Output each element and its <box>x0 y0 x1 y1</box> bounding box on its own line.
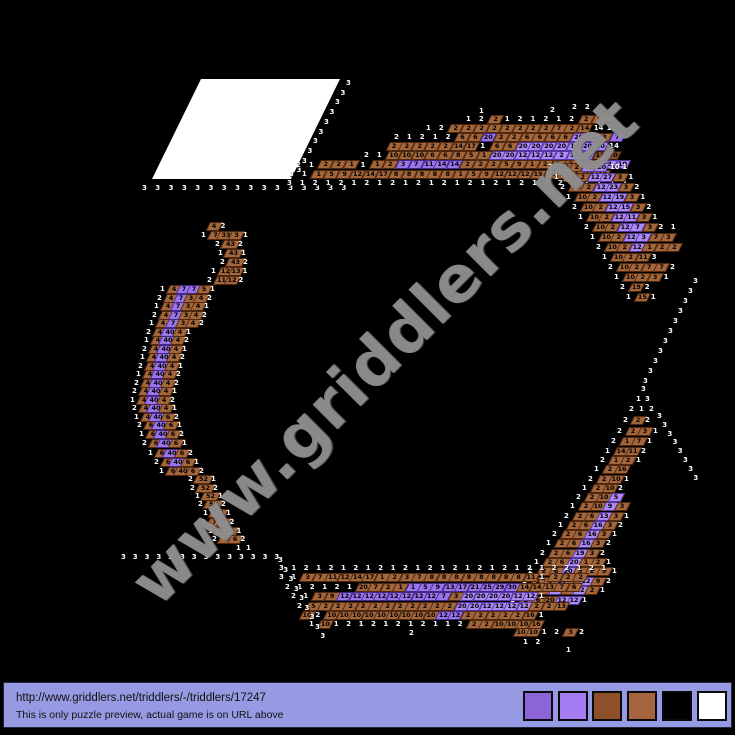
grid-number: 1 <box>626 293 631 301</box>
grid-number: 2 <box>179 430 184 438</box>
grid-number: 1 <box>210 285 215 293</box>
grid-number: 3 <box>278 556 283 564</box>
grid-number: 3 <box>693 474 698 482</box>
clue-cell: 5 <box>610 493 623 502</box>
grid-number: 1 <box>429 179 434 187</box>
clue-cell: 3 <box>626 193 639 202</box>
grid-number: 2 <box>477 564 482 572</box>
grid-number: 2 <box>207 276 212 284</box>
grid-number: 3 <box>645 395 650 403</box>
clue-cell: 5 <box>198 285 211 294</box>
grid-number: 1 <box>578 213 583 221</box>
grid-number: 2 <box>584 223 589 231</box>
grid-number: 1 <box>194 458 199 466</box>
grid-number: 3 <box>643 377 648 385</box>
grid-number: 1 <box>647 437 652 445</box>
grid-number: 2 <box>645 283 650 291</box>
grid-number: 1 <box>177 421 182 429</box>
grid-number: 2 <box>329 564 334 572</box>
grid-number: 2 <box>207 294 212 302</box>
grid-number: 2 <box>646 203 651 211</box>
grid-number: 2 <box>285 583 290 591</box>
grid-number: 1 <box>316 564 321 572</box>
grid-number: 1 <box>480 142 485 150</box>
grid-number: 1 <box>359 620 364 628</box>
grid-number: 3 <box>142 184 147 192</box>
puzzle-url[interactable]: http://www.griddlers.net/triddlers/-/tri… <box>16 692 266 704</box>
grid-number: 1 <box>624 512 629 520</box>
grid-number: 1 <box>664 273 669 281</box>
grid-number: 3 <box>657 412 662 420</box>
grid-number: 2 <box>132 404 137 412</box>
grid-number: 1 <box>341 564 346 572</box>
palette-swatch[interactable] <box>558 691 588 721</box>
grid-number: 2 <box>154 458 159 466</box>
grid-number: 1 <box>309 161 314 169</box>
grid-number: 3 <box>319 128 324 136</box>
grid-number: 1 <box>361 161 366 169</box>
clue-cell: 3 <box>649 273 662 282</box>
grid-number: 1 <box>558 521 563 529</box>
grid-number: 2 <box>199 319 204 327</box>
grid-number: 1 <box>154 302 159 310</box>
grid-number: 2 <box>458 620 463 628</box>
grid-number: 3 <box>341 89 346 97</box>
grid-number: 3 <box>648 367 653 375</box>
preview-note: This is only puzzle preview, actual game… <box>16 709 284 721</box>
grid-number: 1 <box>481 179 486 187</box>
grid-number: 2 <box>346 620 351 628</box>
grid-number: 2 <box>596 243 601 251</box>
grid-number: 1 <box>445 620 450 628</box>
grid-number: 1 <box>539 573 544 581</box>
grid-number: 3 <box>667 430 672 438</box>
grid-number: 2 <box>239 276 244 284</box>
clue-cell: 13 <box>230 267 243 276</box>
grid-number: 1 <box>601 564 606 572</box>
grid-number: 1 <box>366 564 371 572</box>
grid-number: 3 <box>683 456 688 464</box>
grid-number: 1 <box>300 179 305 187</box>
grid-number: 2 <box>634 183 639 191</box>
clue-cell: 2 <box>586 586 599 595</box>
clue-cell: 12 <box>524 592 537 601</box>
grid-number: 1 <box>455 179 460 187</box>
clue-cell: 10 <box>604 484 617 493</box>
grid-number: 2 <box>180 353 185 361</box>
grid-number: 2 <box>518 115 523 123</box>
clue-cell: 16 <box>616 465 629 474</box>
grid-number: 1 <box>546 539 551 547</box>
grid-number: 1 <box>640 193 645 201</box>
grid-number: 3 <box>688 465 693 473</box>
grid-number: 3 <box>320 632 325 640</box>
grid-number: 1 <box>408 620 413 628</box>
grid-number: 2 <box>600 549 605 557</box>
grid-number: 2 <box>174 379 179 387</box>
clue-cell: 3 <box>610 512 623 521</box>
grid-number: 1 <box>160 285 165 293</box>
grid-number: 2 <box>502 564 507 572</box>
grid-number: 1 <box>515 564 520 572</box>
grid-number: 2 <box>142 439 147 447</box>
grid-number: 1 <box>606 558 611 566</box>
grid-number: 2 <box>564 512 569 520</box>
grid-number: 1 <box>140 353 145 361</box>
clue-cell: 4 <box>168 353 181 362</box>
grid-number: 2 <box>142 345 147 353</box>
clue-cell: 11 <box>525 573 538 582</box>
clue-cell: 19 <box>630 283 643 292</box>
grid-number: 1 <box>671 223 676 231</box>
grid-number: 3 <box>324 118 329 126</box>
grid-number: 1 <box>134 413 139 421</box>
grid-number: 1 <box>531 115 536 123</box>
grid-number: 3 <box>310 613 315 621</box>
grid-number: 1 <box>534 558 539 566</box>
clue-cell: 2 <box>632 416 645 425</box>
grid-number: 2 <box>442 179 447 187</box>
grid-number: 1 <box>291 564 296 572</box>
grid-number: 3 <box>641 385 646 393</box>
grid-number: 2 <box>215 240 220 248</box>
clue-cell: 6 <box>165 421 178 430</box>
grid-number: 1 <box>322 583 327 591</box>
grid-number: 2 <box>138 362 143 370</box>
grid-number: 1 <box>612 530 617 538</box>
grid-number: 2 <box>137 421 142 429</box>
clue-cell: 2 <box>489 115 502 124</box>
clue-cell: 3 <box>644 223 657 232</box>
grid-number: 3 <box>673 317 678 325</box>
grid-number: 2 <box>315 611 320 619</box>
grid-number: 1 <box>182 345 187 353</box>
grid-number: 1 <box>440 564 445 572</box>
grid-number: 2 <box>297 602 302 610</box>
grid-number: 2 <box>396 620 401 628</box>
grid-number: 2 <box>670 263 675 271</box>
grid-number: 1 <box>465 564 470 572</box>
grid-number: 1 <box>377 151 382 159</box>
clue-cell: 3 <box>564 628 577 637</box>
grid-number: 2 <box>658 223 663 231</box>
grid-number: 2 <box>618 521 623 529</box>
clue-cell: 2 <box>622 456 635 465</box>
grid-number: 1 <box>426 124 431 132</box>
grid-number: 3 <box>335 98 340 106</box>
grid-number: 1 <box>243 267 248 275</box>
grid-number: 1 <box>211 267 216 275</box>
clue-cell: 3 <box>638 213 651 222</box>
clue-cell: 2 <box>574 573 587 582</box>
grid-number: 3 <box>673 438 678 446</box>
clue-cell: 1 <box>345 160 358 169</box>
grid-number: 1 <box>590 233 595 241</box>
clue-cell: 6 <box>182 458 195 467</box>
grid-number: 1 <box>479 107 484 115</box>
palette-swatch[interactable] <box>592 691 622 721</box>
grid-number: 1 <box>159 467 164 475</box>
grid-number: 1 <box>347 583 352 591</box>
grid-number: 1 <box>556 115 561 123</box>
grid-number: 3 <box>279 573 284 581</box>
grid-number: 1 <box>639 405 644 413</box>
grid-number: 2 <box>588 475 593 483</box>
grid-number: 3 <box>294 585 299 593</box>
palette-swatch[interactable] <box>627 691 657 721</box>
grid-number: 1 <box>309 620 314 628</box>
grid-number: 1 <box>243 231 248 239</box>
clue-cell: 43 <box>222 240 239 249</box>
grid-number: 2 <box>649 405 654 413</box>
grid-number: 2 <box>403 564 408 572</box>
clue-cell: 6 <box>167 430 180 439</box>
grid-number: 2 <box>552 530 557 538</box>
grid-number: 1 <box>383 620 388 628</box>
grid-number: 3 <box>251 553 256 561</box>
clue-cell: 3 <box>586 549 599 558</box>
clue-cell: 3 <box>598 530 611 539</box>
grid-number: 2 <box>296 161 301 169</box>
grid-number: 2 <box>550 106 555 114</box>
grid-number: 1 <box>651 293 656 301</box>
clue-cell: 11 <box>627 447 640 456</box>
grid-number: 2 <box>371 620 376 628</box>
grid-number: 1 <box>201 231 206 239</box>
grid-number: 2 <box>310 583 315 591</box>
grid-number: 2 <box>641 447 646 455</box>
grid-number: 1 <box>582 596 587 604</box>
grid-number: 3 <box>287 179 292 187</box>
grid-number: 1 <box>334 620 339 628</box>
clue-cell: 4 <box>172 336 185 345</box>
grid-number: 2 <box>554 628 559 636</box>
grid-number: 1 <box>144 336 149 344</box>
grid-number: 2 <box>353 564 358 572</box>
grid-number: 2 <box>468 179 473 187</box>
grid-number: 3 <box>683 297 688 305</box>
clue-cell: 3 <box>616 502 629 511</box>
grid-number: 3 <box>330 108 335 116</box>
clue-cell: 2 <box>668 243 681 252</box>
grid-number: 2 <box>313 179 318 187</box>
grid-number: 2 <box>132 387 137 395</box>
clue-cell: 4 <box>164 370 177 379</box>
grid-number: 3 <box>653 357 658 365</box>
clue-cell: 7 <box>655 263 668 272</box>
grid-number: 1 <box>614 273 619 281</box>
grid-number: 1 <box>505 115 510 123</box>
clue-cell: 10 <box>610 475 623 484</box>
grid-number: 2 <box>364 179 369 187</box>
grid-number: 1 <box>391 564 396 572</box>
grid-number: 3 <box>248 184 253 192</box>
grid-number: 1 <box>628 173 633 181</box>
grid-number: 1 <box>582 484 587 492</box>
grid-number: 2 <box>421 620 426 628</box>
clue-cell: 3 <box>639 427 652 436</box>
grid-number: 1 <box>577 564 582 572</box>
grid-number: 3 <box>678 447 683 455</box>
grid-number: 2 <box>364 151 369 159</box>
clue-cell: 3 <box>620 183 633 192</box>
clue-cell: 4 <box>187 319 200 328</box>
grid-number: 1 <box>652 213 657 221</box>
grid-number: 1 <box>302 170 307 178</box>
grid-number: 3 <box>289 170 294 178</box>
grid-number: 3 <box>275 184 280 192</box>
clue-cell: 12 <box>226 276 239 285</box>
grid-number: 1 <box>594 465 599 473</box>
grid-number: 1 <box>653 427 658 435</box>
grid-number: 3 <box>688 287 693 295</box>
grid-number: 1 <box>178 362 183 370</box>
grid-number: 1 <box>326 179 331 187</box>
palette-swatch[interactable] <box>523 691 553 721</box>
clue-cell: 43 <box>225 249 242 258</box>
footer-bar: http://www.griddlers.net/triddlers/-/tri… <box>3 682 732 728</box>
grid-number: 2 <box>188 475 193 483</box>
grid-number: 1 <box>246 544 251 552</box>
clue-cell: 11 <box>637 253 650 262</box>
grid-number: 2 <box>527 564 532 572</box>
grid-number: 1 <box>218 249 223 257</box>
clue-cell: 3 <box>592 539 605 548</box>
grid-number: 2 <box>335 583 340 591</box>
clue-cell: 4 <box>192 302 205 311</box>
grid-number: 1 <box>466 115 471 123</box>
clue-cell: 6 <box>170 439 183 448</box>
grid-number: 2 <box>378 564 383 572</box>
grid-number: 2 <box>543 115 548 123</box>
grid-number: 2 <box>304 564 309 572</box>
grid-number: 1 <box>539 564 544 572</box>
grid-number: 2 <box>453 564 458 572</box>
grid-number: 1 <box>148 449 153 457</box>
clue-cell: 15 <box>636 293 649 302</box>
clue-cell: 3 <box>632 203 645 212</box>
clue-cell: 9 <box>592 577 605 586</box>
grid-number: 2 <box>238 240 243 248</box>
grid-number: 1 <box>352 179 357 187</box>
grid-number: 3 <box>235 184 240 192</box>
grid-number: 3 <box>239 553 244 561</box>
clue-cell: 6 <box>568 583 581 592</box>
grid-number: 3 <box>663 337 668 345</box>
grid-number: 1 <box>636 456 641 464</box>
grid-number: 3 <box>222 184 227 192</box>
clue-cell: 10 <box>527 628 540 637</box>
grid-number: 2 <box>439 124 444 132</box>
grid-number: 1 <box>407 133 412 141</box>
clue-cell: 16 <box>524 611 537 620</box>
grid-number: 1 <box>636 395 641 403</box>
grid-number: 3 <box>313 137 318 145</box>
grid-number: 2 <box>479 115 484 123</box>
grid-number: 1 <box>539 592 544 600</box>
grid-number: 3 <box>678 307 683 315</box>
grid-number: 2 <box>629 405 634 413</box>
clue-cell: 17 <box>465 142 478 151</box>
grid-number: 1 <box>136 370 141 378</box>
grid-number: 2 <box>416 179 421 187</box>
grid-number: 2 <box>618 484 623 492</box>
grid-number: 3 <box>658 347 663 355</box>
grid-number: 3 <box>299 594 304 602</box>
clue-cell: 4 <box>160 387 173 396</box>
grid-number: 2 <box>606 539 611 547</box>
grid-number: 2 <box>617 427 622 435</box>
grid-number: 2 <box>600 456 605 464</box>
grid-number: 1 <box>172 404 177 412</box>
grid-number: 1 <box>415 564 420 572</box>
grid-number: 2 <box>608 263 613 271</box>
grid-number: 1 <box>612 567 617 575</box>
grid-number: 2 <box>409 629 414 637</box>
grid-number: 2 <box>623 416 628 424</box>
grid-number: 2 <box>579 628 584 636</box>
grid-number: 1 <box>433 620 438 628</box>
grid-number: 2 <box>589 564 594 572</box>
grid-number: 3 <box>262 184 267 192</box>
grid-number: 1 <box>542 628 547 636</box>
grid-number: 2 <box>390 179 395 187</box>
grid-number: 1 <box>172 387 177 395</box>
grid-number: 1 <box>130 396 135 404</box>
grid-number: 3 <box>346 79 351 87</box>
grid-number: 2 <box>184 336 189 344</box>
grid-number: 1 <box>204 302 209 310</box>
grid-number: 2 <box>394 133 399 141</box>
grid-number: 1 <box>149 319 154 327</box>
grid-number: 2 <box>420 133 425 141</box>
clue-cell: 6 <box>176 449 189 458</box>
grid-number: 2 <box>243 258 248 266</box>
clue-cell: 10 <box>319 620 332 629</box>
palette-swatch[interactable] <box>697 691 727 721</box>
palette-swatch[interactable] <box>662 691 692 721</box>
clue-cell: 43 <box>227 258 244 267</box>
grid-number: 3 <box>263 553 268 561</box>
grid-number: 3 <box>315 623 320 631</box>
grid-number: 2 <box>535 638 540 646</box>
grid-number: 2 <box>446 133 451 141</box>
clue-cell: 3 <box>230 231 243 240</box>
grid-number: 2 <box>188 449 193 457</box>
grid-number: 2 <box>176 370 181 378</box>
grid-number: 1 <box>241 249 246 257</box>
grid-number: 3 <box>302 157 307 165</box>
grid-number: 3 <box>308 147 313 155</box>
grid-number: 3 <box>182 184 187 192</box>
grid-number: 2 <box>339 179 344 187</box>
grid-number: 2 <box>606 577 611 585</box>
grid-number: 2 <box>576 493 581 501</box>
grid-number: 1 <box>139 430 144 438</box>
grid-number: 3 <box>195 184 200 192</box>
grid-number: 3 <box>155 184 160 192</box>
grid-number: 2 <box>564 564 569 572</box>
grid-number: 1 <box>523 638 528 646</box>
grid-number: 2 <box>611 437 616 445</box>
grid-number: 3 <box>652 253 657 261</box>
clue-cell: 3 <box>662 233 675 242</box>
grid-number: 1 <box>403 179 408 187</box>
grid-number: 1 <box>539 611 544 619</box>
triddler-puzzle-preview: www.griddlers.net 3333333333333333333333… <box>0 0 735 735</box>
grid-number: 1 <box>605 447 610 455</box>
clue-cell: 3 <box>604 521 617 530</box>
